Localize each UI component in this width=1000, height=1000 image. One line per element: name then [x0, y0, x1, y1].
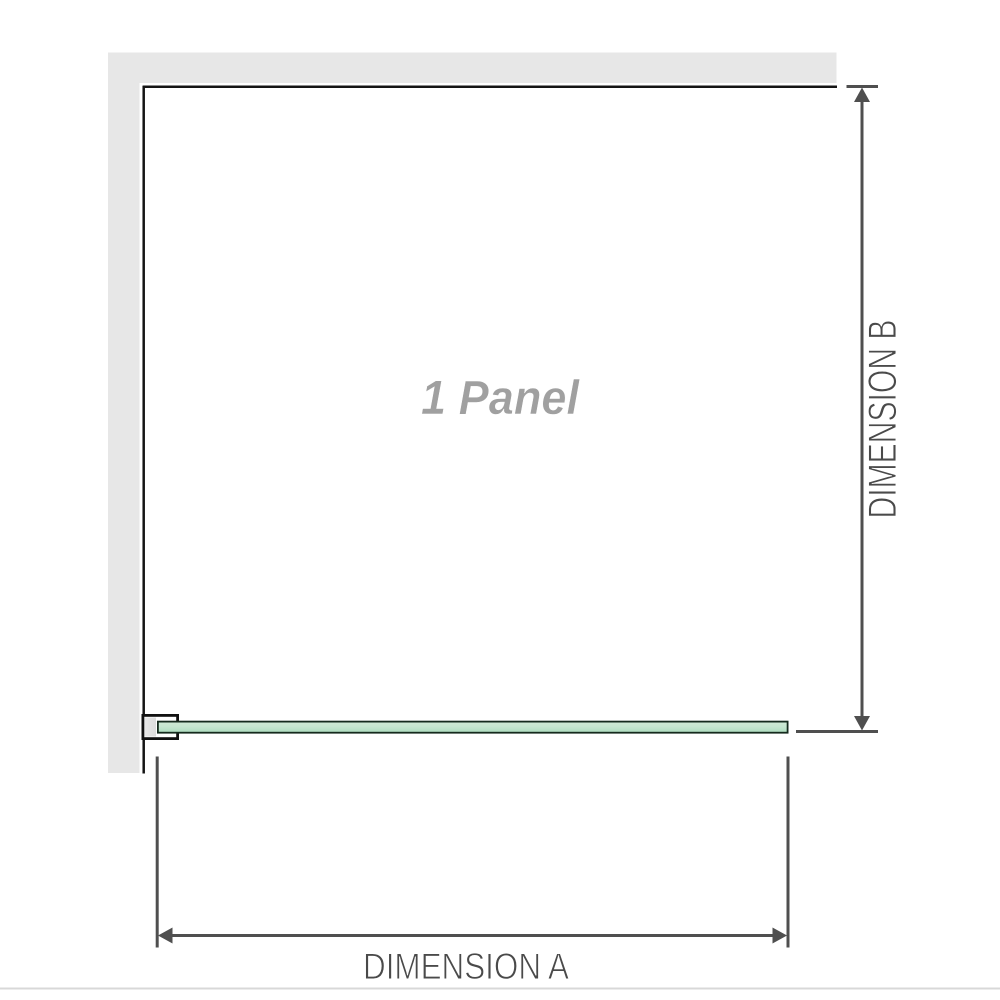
svg-text:1 Panel: 1 Panel — [421, 372, 581, 425]
svg-text:DIMENSION B: DIMENSION B — [861, 320, 905, 519]
svg-text:DIMENSION A: DIMENSION A — [363, 946, 569, 987]
